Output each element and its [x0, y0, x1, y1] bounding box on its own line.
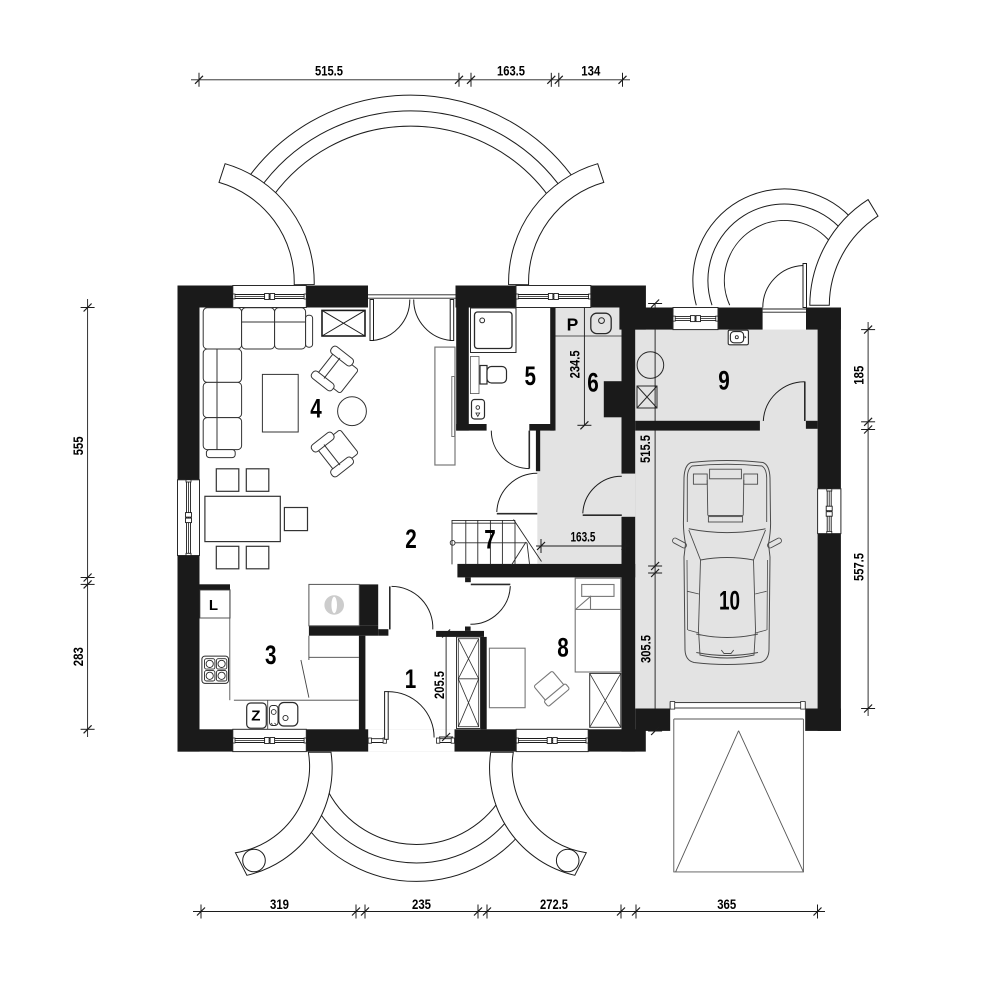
- svg-text:1: 1: [405, 664, 417, 694]
- svg-text:555: 555: [71, 436, 86, 455]
- svg-text:319: 319: [270, 897, 289, 912]
- svg-text:234.5: 234.5: [568, 350, 583, 378]
- svg-text:365: 365: [717, 897, 736, 912]
- svg-text:515.5: 515.5: [638, 435, 653, 463]
- svg-text:163.5: 163.5: [571, 530, 596, 545]
- svg-text:Z: Z: [251, 708, 260, 725]
- svg-text:7: 7: [484, 525, 496, 555]
- svg-text:305.5: 305.5: [638, 635, 653, 663]
- svg-text:185: 185: [852, 365, 867, 384]
- svg-text:9: 9: [718, 366, 730, 396]
- svg-text:3: 3: [265, 640, 277, 670]
- svg-text:P: P: [567, 315, 579, 335]
- svg-text:6: 6: [587, 368, 599, 398]
- svg-text:557.5: 557.5: [852, 553, 867, 581]
- svg-text:163.5: 163.5: [497, 64, 525, 79]
- svg-text:515.5: 515.5: [315, 64, 343, 79]
- svg-text:235: 235: [412, 897, 431, 912]
- svg-text:2: 2: [405, 524, 417, 554]
- svg-text:4: 4: [310, 394, 322, 424]
- svg-text:134: 134: [581, 64, 600, 79]
- svg-text:8: 8: [557, 633, 569, 663]
- svg-text:10: 10: [719, 586, 740, 616]
- svg-text:205.5: 205.5: [432, 671, 447, 699]
- svg-text:L: L: [209, 597, 218, 614]
- svg-text:283: 283: [71, 647, 86, 666]
- svg-text:272.5: 272.5: [540, 897, 568, 912]
- svg-text:5: 5: [525, 361, 537, 391]
